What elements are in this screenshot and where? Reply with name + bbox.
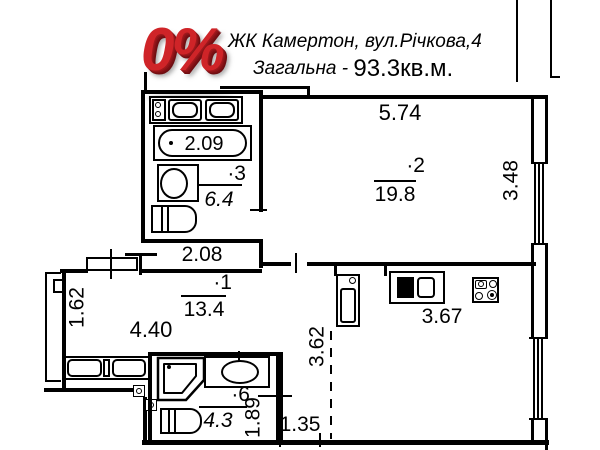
total-area-line: Загальна - 93.3кв.м.: [253, 55, 453, 83]
wall: [516, 0, 518, 82]
wall: [545, 245, 548, 337]
zero-percent-logo: 0%: [141, 20, 222, 80]
toilet-icon: [174, 410, 176, 432]
wall: [550, 76, 560, 78]
wall-niche: [53, 279, 64, 293]
wall: [550, 0, 552, 78]
dim-kitchen-width: 3.67: [411, 306, 473, 327]
dim-room2-height: 3.48: [501, 151, 522, 211]
wall: [45, 272, 47, 382]
room-2-underline: [374, 180, 416, 182]
room-2-number: ·2: [389, 155, 425, 176]
room-1-area: 13.4: [180, 299, 228, 320]
stove-burner-icon: [475, 292, 483, 300]
room-3-underline: [197, 184, 242, 186]
window: [537, 337, 539, 420]
toilet-icon: [167, 207, 169, 231]
room-3-area: 6.4: [196, 189, 242, 210]
wall: [45, 272, 61, 274]
dim-bathtub: 2.09: [176, 134, 232, 155]
window: [541, 337, 543, 420]
wall: [45, 380, 61, 382]
window: [542, 162, 544, 245]
total-area-label: Загальна -: [253, 58, 353, 79]
total-area-value: 93.3кв.м.: [353, 55, 453, 82]
laundry-unit-icon: [155, 102, 161, 108]
wall: [531, 99, 534, 162]
shower-icon: [156, 356, 206, 402]
wall: [259, 262, 291, 266]
dim-room1-side: 1.62: [67, 278, 88, 338]
room-2-area: 19.8: [370, 184, 420, 205]
complex-address: ЖК Камертон, вул.Річкова,4: [228, 31, 482, 53]
toilet-icon: [161, 207, 163, 231]
kitchen-sink-icon: [397, 277, 414, 298]
door-tick: [110, 249, 112, 279]
window: [534, 162, 536, 245]
dim-hall2-width: 1.35: [272, 414, 328, 435]
dim-room1-width: 4.40: [120, 319, 182, 340]
stove-burner-icon: [478, 281, 484, 287]
bathtub-tap-icon: [169, 141, 173, 145]
dimension-tick: [250, 209, 267, 211]
room-6-area: 4.3: [193, 410, 243, 431]
dim-hall: 2.08: [172, 244, 232, 265]
window: [533, 337, 535, 420]
dim-kitchen-height: 3.62: [307, 317, 328, 377]
wall: [44, 388, 142, 392]
entrance-door: [86, 257, 138, 271]
floor-plan-image: 0% ЖК Камертон, вул.Річкова,4 Загальна -…: [0, 0, 600, 450]
room-1-number: ·1: [196, 272, 232, 293]
wall: [259, 90, 263, 212]
wall: [531, 245, 534, 337]
washing-machine-icon: [209, 102, 235, 118]
sink-tap-icon: [238, 351, 240, 362]
fridge-icon: [340, 288, 356, 323]
room-6-underline: [199, 406, 247, 408]
stove-burner-icon: [490, 293, 494, 297]
kitchen-sink-icon: [417, 277, 435, 298]
wall: [220, 86, 310, 89]
wall: [384, 266, 387, 276]
wall: [263, 95, 548, 99]
door-tick: [295, 253, 297, 273]
washing-machine-icon: [172, 102, 198, 118]
wall: [141, 90, 263, 94]
sink-icon: [160, 168, 188, 199]
room-1-underline: [181, 295, 226, 297]
wall: [545, 420, 548, 450]
sofa-icon: [112, 359, 146, 377]
wall: [307, 262, 536, 266]
column-marker: [136, 388, 142, 394]
dim-bath6-side: 1.89: [243, 388, 264, 448]
sofa-icon: [67, 359, 102, 377]
wall: [545, 95, 548, 162]
sofa-icon: [103, 359, 110, 377]
window: [538, 162, 540, 245]
toilet-icon: [168, 410, 170, 432]
wall: [144, 72, 147, 90]
fridge-icon: [349, 277, 356, 284]
zone-divider-dashed-line: [330, 331, 332, 439]
toilet-icon: [151, 205, 197, 233]
laundry-unit-icon: [155, 111, 161, 117]
room-3-number: ·3: [210, 163, 246, 184]
sink-icon: [221, 360, 259, 384]
dim-room2-width: 5.74: [368, 102, 432, 123]
stove-burner-icon: [489, 280, 497, 288]
wall: [142, 440, 549, 445]
wall: [141, 90, 145, 243]
